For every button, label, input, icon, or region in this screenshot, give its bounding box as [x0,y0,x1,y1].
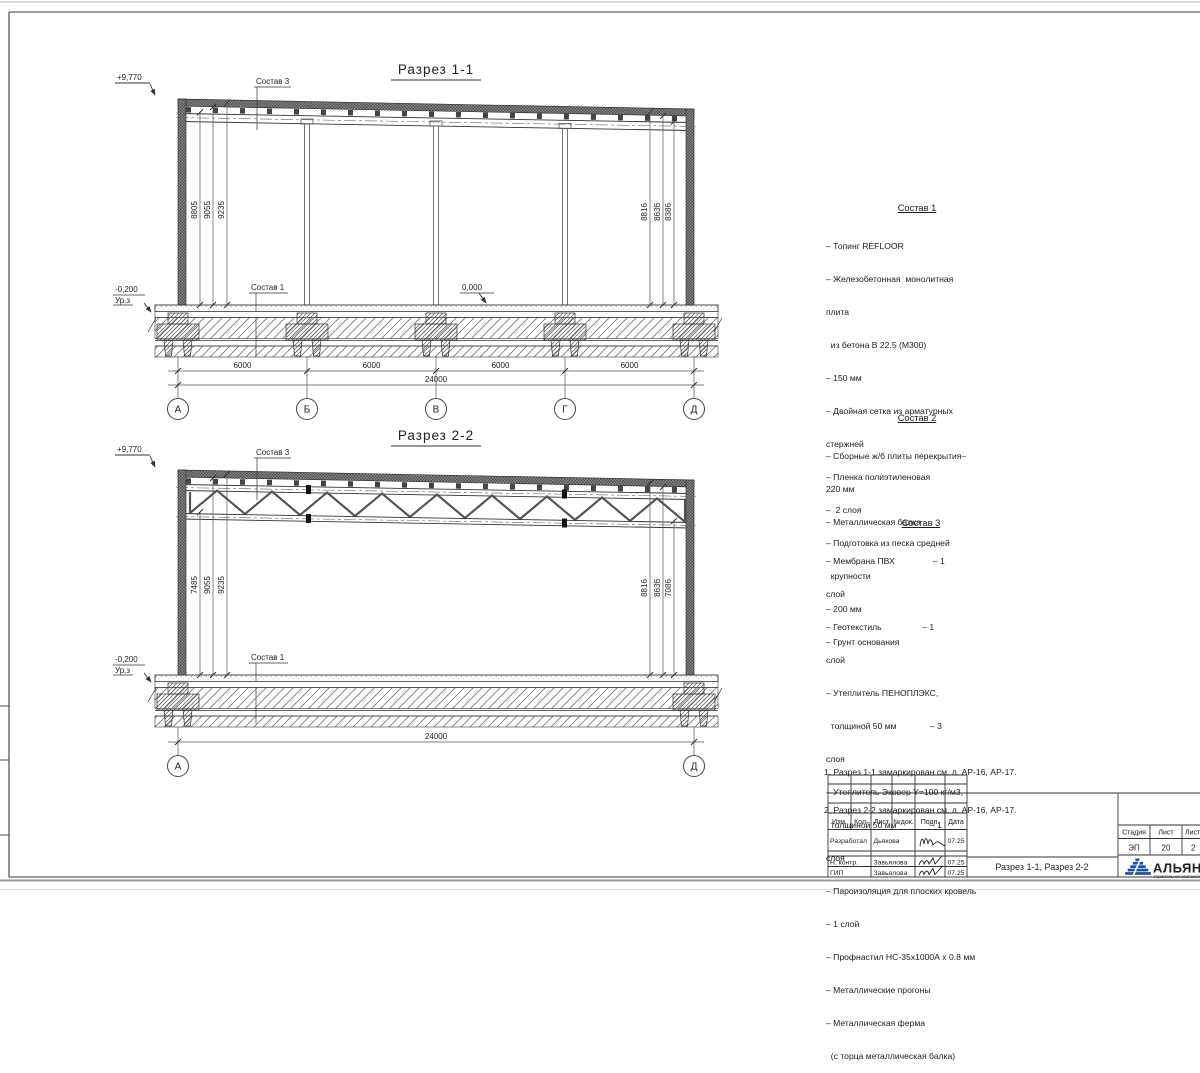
sheets-value: 2 [1191,844,1196,853]
sostav3-line: слой [826,655,1016,666]
axis-d: Д [691,405,698,416]
columns [301,119,571,305]
sostav3-line: – Геотекстиль – 1 [826,622,1016,633]
drawing-sheet: { "s1": { "title": "Разрез 1-1", "elev_t… [0,0,1200,900]
dim-8636-2: 8636 [653,579,662,597]
notes-block: 1. Разрез 1-1 замаркирован см. л. АР-16,… [824,741,1017,829]
sostav3-line: – Металлическая ферма [826,1018,1016,1029]
svg-text:Ур.з: Ур.з [115,296,130,305]
elevation-mark-top-2: +9,770 [115,445,155,467]
wall-right [686,109,694,305]
section-1-1: Разрез 1-1 +9,770 Состав 3 [113,62,722,420]
sostav1-line: – 150 мм [826,373,1008,384]
sheets-label: Листов [1185,830,1200,837]
elevation-mark-top: +9,770 [115,73,155,95]
elevation-ground-mark: -0,200 Ур.з [113,285,151,312]
axis-d-2: Д [691,762,698,773]
sostav1-line: из бетона В 22.5 (М300) [826,340,1008,351]
elevation-ground-mark-2: -0,200 Ур.з [113,655,151,682]
sostav2-line: – Сборные ж/б плиты перекрытия– [826,451,1008,462]
sostav3-line: – Пароизоляция для плоских кровель [826,886,1016,897]
elevation-top-value: +9,770 [117,73,142,82]
sostav1-heading: Состав 1 [826,203,1008,214]
dim-8805: 8805 [190,201,199,219]
elevation-zero: 0,000 [460,283,494,303]
sostav3-line: – Мембрана ПВХ – 1 [826,556,1016,567]
dim-9055: 9055 [203,201,212,219]
dim-total-2: 24000 [425,732,448,741]
svg-text:Состав 1: Состав 1 [251,653,285,662]
sostav3-line: – Утеплитель ПЕНОПЛЭКС, [826,688,1016,699]
dim-8636: 8636 [653,203,662,221]
dim-8816: 8816 [640,203,649,221]
sostav1-line: плита [826,307,1008,318]
dim-9235: 9235 [217,201,226,219]
sostav3-line: – 1 слой [826,919,1016,930]
wall-left [178,99,186,305]
svg-text:Ур.з: Ур.з [115,666,130,675]
sheet-value: 20 [1162,844,1171,853]
sostav3-line: слой [826,589,1016,600]
dim-span-2: 6000 [363,361,381,370]
roof-layers-2 [178,470,694,487]
note-line: 1. Разрез 1-1 замаркирован см. л. АР-16,… [824,766,1017,779]
dim-span-3: 6000 [492,361,510,370]
axis-a: А [175,405,182,416]
truss-web [190,491,685,522]
sostav3-line: толщиной 50 мм – 3 [826,721,1016,732]
sostav2-line: 220 мм [826,484,1008,495]
svg-text:Состав 1: Состав 1 [251,283,285,292]
svg-text:Состав 3: Состав 3 [256,77,290,86]
dims-vertical-right-2 [647,480,677,678]
dim-9055-2: 9055 [203,576,212,594]
sostav2-heading: Состав 2 [826,413,1008,424]
svg-text:-0,200: -0,200 [115,655,138,664]
axis-bubbles-2 [168,756,705,777]
stage-value: ЭП [1128,844,1140,853]
sostav3-heading: Состав 3 [826,518,1016,529]
dim-8386: 8386 [664,203,673,221]
floor-and-ground-2 [148,675,722,727]
company-logo: АЛЬЯНС строительная компания [1125,858,1200,879]
axis-v: В [433,405,440,416]
section-1-title: Разрез 1-1 [398,62,474,77]
section-2-title: Разрез 2-2 [398,428,474,443]
sostav3-line: – Металлические прогоны [826,985,1016,996]
dim-7086: 7086 [664,579,673,597]
dim-9235-2: 9235 [217,576,226,594]
wall-left-2 [178,470,186,675]
axis-g: Г [562,405,568,416]
sostav3-line: слоя [826,853,1016,864]
svg-text:+9,770: +9,770 [117,445,142,454]
svg-text:0,000: 0,000 [462,283,483,292]
section-2-2: Разрез 2-2 +9,770 С [113,428,722,777]
sostav1-line: – Железобетонная монолитная [826,274,1008,285]
stage-label: Стадия [1122,830,1146,837]
roof-layers [178,99,694,116]
svg-text:Состав 3: Состав 3 [256,448,290,457]
dim-span-1: 6000 [234,361,252,370]
dim-span-4: 6000 [621,361,639,370]
logo-subtext: строительная компания [1154,874,1200,879]
sostav1-line: – Топинг REFLOOR [826,241,1008,252]
sheet-label: Лист [1158,830,1174,837]
dim-total: 24000 [425,375,448,384]
axis-b: Б [304,405,311,416]
dim-7485: 7485 [190,576,199,594]
svg-text:-0,200: -0,200 [115,285,138,294]
sostav3-line: (с торца металлическая балка) [826,1051,1016,1062]
axis-a-2: А [175,762,182,773]
sostav3-line: – Профнастил НС-35х1000А х 0.8 мм [826,952,1016,963]
wall-right-2 [686,480,694,675]
drawing-canvas: Разрез 1-1 +9,770 Состав 3 [0,0,1200,900]
dim-8816-2: 8816 [640,579,649,597]
logo-pyramid-icon [1125,858,1151,876]
note-line: 2. Разрез 2-2 замаркирован см. л. АР-16,… [824,804,1017,817]
